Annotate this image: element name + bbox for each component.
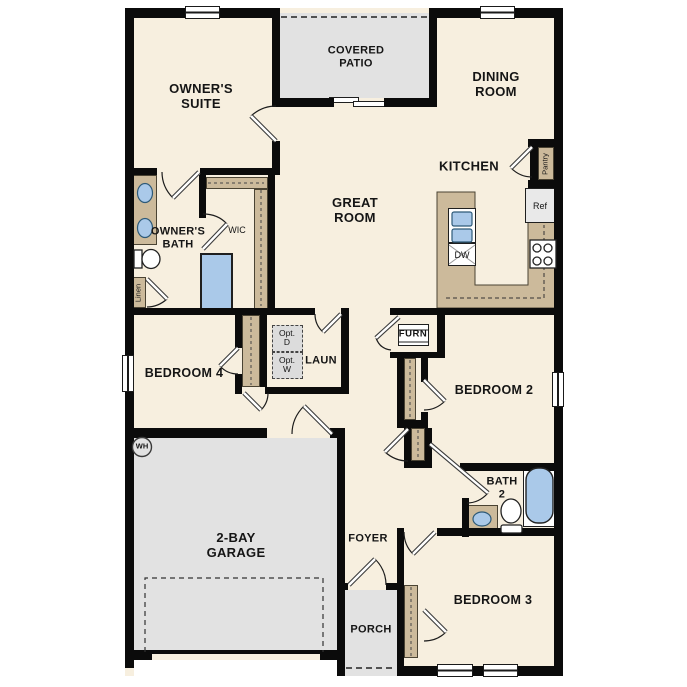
burner-icon	[533, 244, 541, 252]
burner-icon	[544, 257, 552, 265]
toilet-icon	[142, 250, 160, 269]
kitchen-sink-icon	[452, 212, 472, 226]
kitchen-sink-icon	[452, 229, 472, 242]
toilet-icon	[134, 250, 142, 268]
kitchen-label: KITCHEN	[439, 160, 499, 175]
garage-label: 2-BAY GARAGE	[207, 531, 266, 561]
great-room-label: GREAT ROOM	[332, 196, 378, 226]
bedroom4-label: BEDROOM 4	[145, 366, 223, 380]
dining-room-label: DINING ROOM	[472, 70, 519, 100]
bath-sink-icon	[138, 184, 153, 203]
owners-bath-label: OWNER'S BATH	[151, 225, 205, 250]
toilet-icon	[501, 525, 522, 533]
foyer-label: FOYER	[348, 533, 387, 546]
owners-suite-label: OWNER'S SUITE	[169, 82, 233, 112]
dw-label: DW	[455, 250, 470, 260]
doors-and-fixtures-layer	[0, 0, 687, 687]
laundry-label: LAUN	[305, 355, 337, 368]
floor-plan: OWNER'S SUITE COVERED PATIO DINING ROOM …	[0, 0, 687, 687]
wic-label: WIC	[228, 225, 246, 235]
bedroom3-label: BEDROOM 3	[454, 593, 532, 607]
bedroom2-label: BEDROOM 2	[455, 383, 533, 397]
dashed-lines	[145, 17, 544, 668]
burner-icon	[544, 244, 552, 252]
opt-dryer-label: Opt. D	[279, 329, 295, 347]
tub-icon	[526, 468, 553, 523]
opt-washer-label: Opt. W	[279, 356, 295, 374]
ref-label: Ref	[533, 201, 547, 211]
pantry-label: Pantry	[542, 153, 551, 175]
bath2-sink-icon	[473, 512, 491, 526]
toilet-icon	[501, 499, 521, 523]
linen-label: Linen	[135, 284, 144, 302]
water-heater-label: WH	[136, 443, 149, 452]
covered-patio-label: COVERED PATIO	[328, 44, 385, 69]
bath2-label: BATH 2	[487, 475, 518, 500]
burner-icon	[533, 257, 541, 265]
porch-label: PORCH	[350, 624, 391, 637]
furnace-label: FURN	[399, 330, 427, 341]
